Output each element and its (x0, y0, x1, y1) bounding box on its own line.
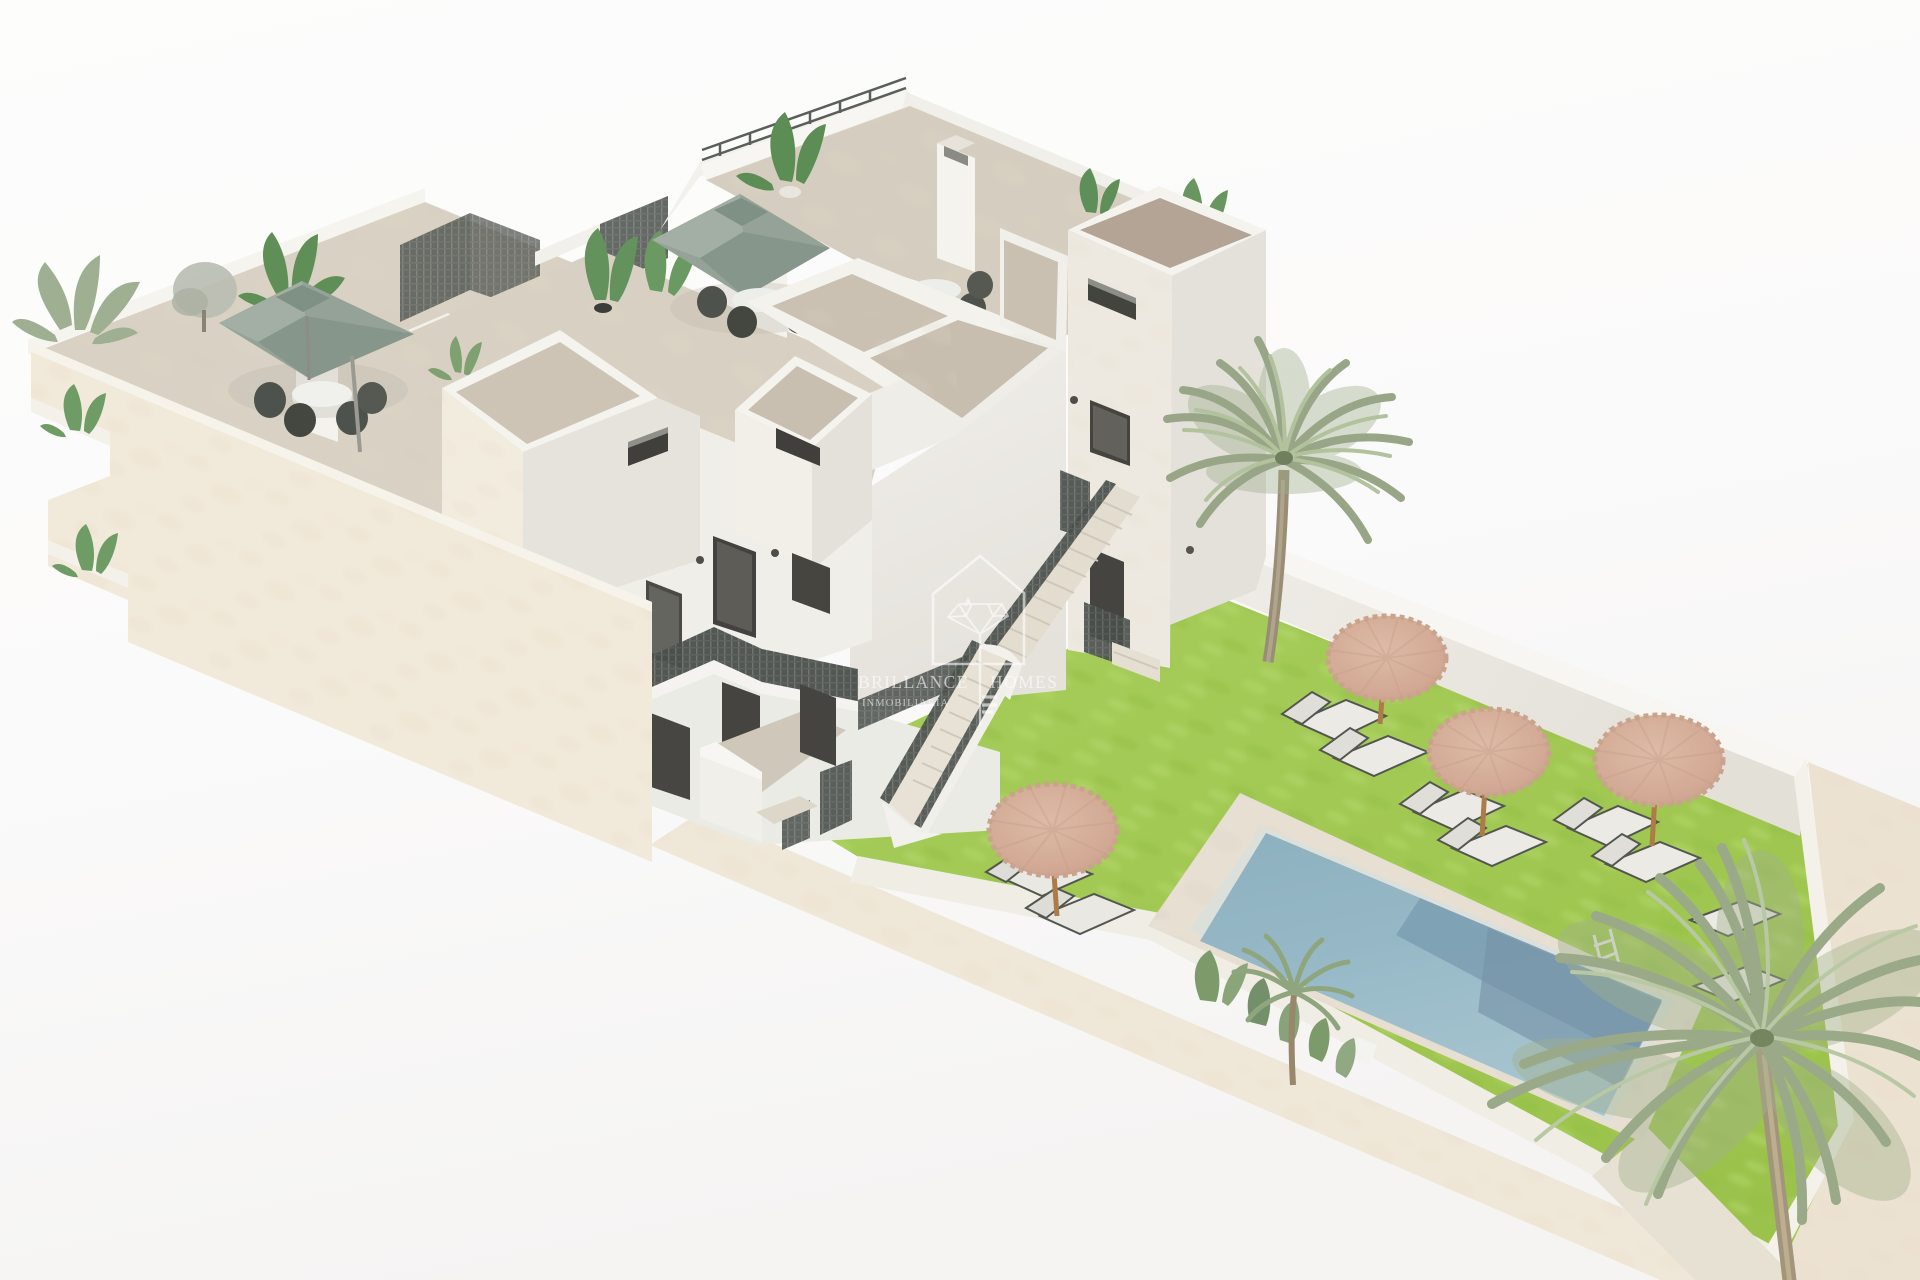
svg-text:HOMES: HOMES (990, 672, 1058, 692)
svg-text:BRILLANCE: BRILLANCE (858, 672, 969, 692)
svg-text:INMOBILIARIA: INMOBILIARIA (862, 698, 949, 709)
